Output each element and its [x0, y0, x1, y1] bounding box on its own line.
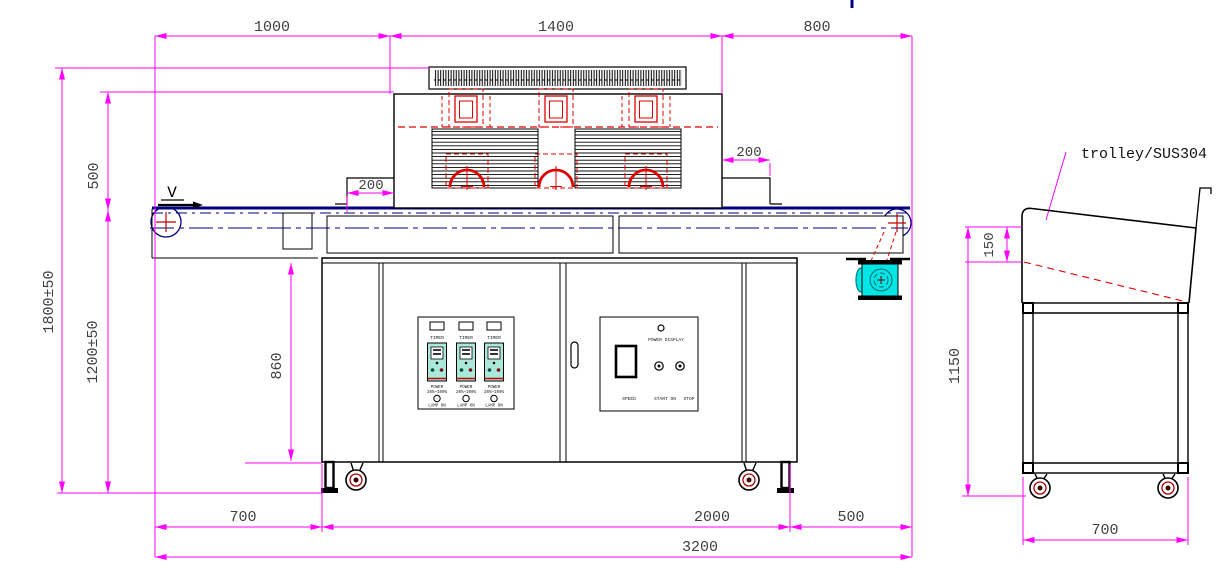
dim-trolley-700: 700 [1091, 522, 1118, 539]
start-on-label: START ON [654, 396, 676, 402]
dim-left-1800: 1800±50 [41, 270, 58, 333]
power-label: POWER [460, 386, 473, 390]
belt-support-block [283, 213, 312, 249]
belt-direction: V [158, 184, 203, 209]
heatsink-left [432, 129, 538, 188]
dim-total-3200: 3200 [682, 539, 718, 556]
conveyor-frame-left [327, 216, 613, 253]
dim-offset-right-200: 200 [736, 145, 761, 161]
speed-label: SPEED [622, 396, 636, 402]
timer-label: TIMER [430, 335, 444, 341]
timer-window [459, 322, 473, 330]
lamp-on-indicator [491, 395, 497, 401]
power-display-indicator [658, 325, 664, 331]
power-range-label: 20%~100% [484, 391, 505, 395]
lamp-on-indicator [434, 395, 440, 401]
dim-top-1400: 1400 [538, 19, 574, 36]
dim-left-1200: 1200±50 [85, 320, 102, 383]
power-range-label: 20%~100% [456, 391, 477, 395]
exit-guard [722, 178, 782, 204]
trolley-label: trolley/SUS304 [1081, 146, 1207, 163]
machine-caster-left [346, 463, 366, 490]
power-label: POWER [431, 386, 444, 390]
dim-trolley-150: 150 [982, 232, 998, 257]
dim-trolley-1150: 1150 [947, 348, 964, 384]
dim-left-500: 500 [86, 162, 103, 189]
cabinet [322, 258, 797, 462]
timer-label: TIMER [459, 335, 473, 341]
power-range-label: 20%~100% [427, 391, 448, 395]
machine-caster-right [739, 463, 759, 490]
dim-bottom-500: 500 [837, 509, 864, 526]
power-label: POWER [488, 386, 501, 390]
trolley-wheel-right [1158, 474, 1178, 498]
dim-bottom-700: 700 [229, 509, 256, 526]
main-control-panel: POWER DISPLAY SPEED START ON STOP [600, 317, 698, 411]
lamp-on-label: LAMP ON [485, 405, 503, 409]
door-handle [571, 342, 578, 368]
dim-cabinet-860: 860 [269, 352, 286, 379]
uv-curing-machine-drawing: TIMER POWER 20%~100% LAMP ON TIMER [0, 0, 1224, 579]
front-view: TIMER POWER 20%~100% LAMP ON TIMER [150, 67, 911, 493]
timer-window [430, 322, 444, 330]
machine-feet [321, 462, 794, 493]
stop-label: STOP [683, 396, 694, 402]
cad-drawing-page: TIMER POWER 20%~100% LAMP ON TIMER [0, 0, 1224, 579]
trolley-side-view: trolley/SUS304 [947, 146, 1211, 545]
timer-label: TIMER [487, 335, 501, 341]
dim-top-1000: 1000 [254, 19, 290, 36]
lamp-on-label: LAMP ON [457, 405, 475, 409]
trolley-tray-slope [1024, 262, 1187, 302]
trolley-wheel-left [1030, 474, 1050, 498]
vent-slots [434, 70, 682, 86]
speed-display-window [616, 346, 636, 377]
lamp-on-indicator [463, 395, 469, 401]
power-display-label: POWER DISPLAY [648, 337, 684, 343]
dim-offset-left-200: 200 [358, 178, 383, 194]
dim-top-800: 800 [803, 19, 830, 36]
direction-label: V [167, 184, 177, 202]
heatsink-right [575, 129, 681, 188]
lamp-control-panel: TIMER POWER 20%~100% LAMP ON TIMER [418, 317, 514, 409]
dim-bottom-2000: 2000 [694, 509, 730, 526]
trolley-frame [1023, 303, 1188, 473]
timer-window [487, 322, 501, 330]
lamp-on-label: LAMP ON [428, 405, 446, 409]
conveyor-frame-right [619, 216, 903, 253]
